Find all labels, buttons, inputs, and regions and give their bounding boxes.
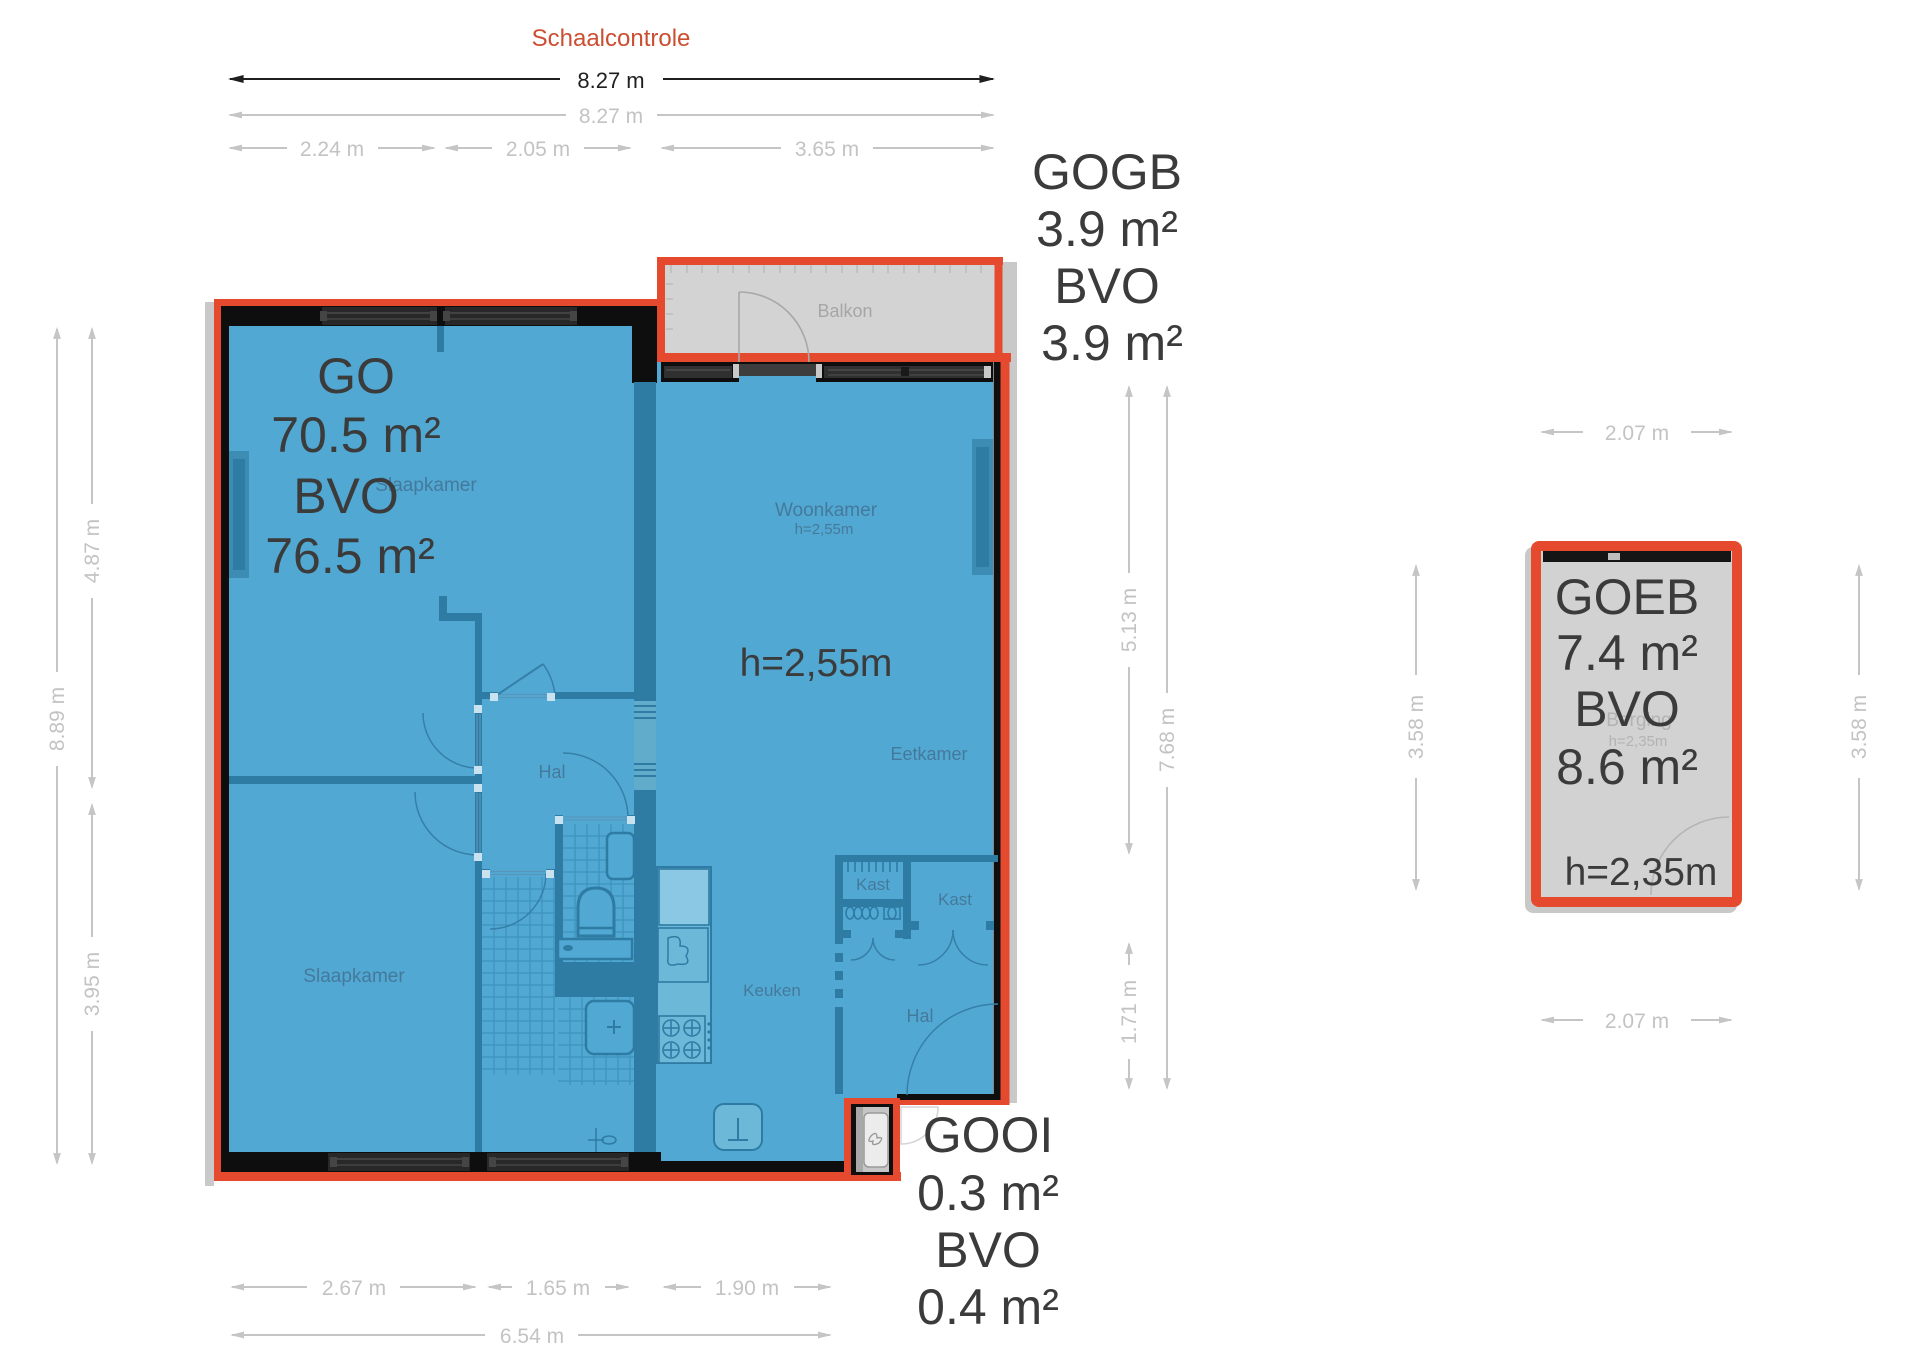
svg-text:1.71 m: 1.71 m xyxy=(1118,980,1141,1044)
svg-text:GOGB: GOGB xyxy=(1032,144,1182,200)
svg-text:8.27 m: 8.27 m xyxy=(577,68,644,93)
svg-text:3.58 m: 3.58 m xyxy=(1405,695,1428,759)
svg-text:3.58 m: 3.58 m xyxy=(1848,695,1871,759)
svg-text:h=2,35m: h=2,35m xyxy=(1565,851,1718,894)
svg-text:Woonkamer: Woonkamer xyxy=(775,500,878,521)
svg-text:Balkon: Balkon xyxy=(817,301,872,321)
svg-text:h=2,55m: h=2,55m xyxy=(795,521,854,538)
svg-text:70.5 m²: 70.5 m² xyxy=(271,407,441,463)
svg-text:3.65 m: 3.65 m xyxy=(795,138,859,161)
svg-text:7.68 m: 7.68 m xyxy=(1156,708,1179,772)
svg-text:Kast: Kast xyxy=(938,890,972,909)
svg-text:Eetkamer: Eetkamer xyxy=(890,744,967,764)
svg-text:8.6 m²: 8.6 m² xyxy=(1556,739,1698,795)
svg-text:BVO: BVO xyxy=(1574,681,1680,737)
svg-text:BVO: BVO xyxy=(935,1222,1041,1278)
svg-text:3.9 m²: 3.9 m² xyxy=(1041,315,1183,371)
svg-text:3.95 m: 3.95 m xyxy=(81,952,104,1016)
svg-text:BVO: BVO xyxy=(1054,258,1160,314)
svg-text:1.65 m: 1.65 m xyxy=(526,1277,590,1300)
svg-text:Hal: Hal xyxy=(538,762,565,782)
svg-text:Kast: Kast xyxy=(856,875,890,894)
svg-text:5.13 m: 5.13 m xyxy=(1118,588,1141,652)
svg-text:GOOI: GOOI xyxy=(923,1107,1054,1163)
svg-text:Keuken: Keuken xyxy=(743,981,801,1000)
svg-text:7.4 m²: 7.4 m² xyxy=(1556,625,1698,681)
svg-text:Slaapkamer: Slaapkamer xyxy=(303,966,405,987)
svg-text:8.89 m: 8.89 m xyxy=(46,687,69,751)
svg-text:6.54 m: 6.54 m xyxy=(500,1325,564,1348)
svg-text:4.87 m: 4.87 m xyxy=(81,519,104,583)
svg-text:2.67 m: 2.67 m xyxy=(322,1277,386,1300)
svg-text:GOEB: GOEB xyxy=(1555,569,1699,625)
svg-text:Hal: Hal xyxy=(906,1006,933,1026)
svg-text:2.05 m: 2.05 m xyxy=(506,138,570,161)
svg-text:76.5 m²: 76.5 m² xyxy=(265,528,435,584)
svg-text:h=2,55m: h=2,55m xyxy=(740,642,893,685)
svg-text:2.24 m: 2.24 m xyxy=(300,138,364,161)
svg-text:1.90 m: 1.90 m xyxy=(715,1277,779,1300)
svg-text:8.27 m: 8.27 m xyxy=(579,105,643,128)
svg-text:2.07 m: 2.07 m xyxy=(1605,1010,1669,1033)
svg-text:Schaalcontrole: Schaalcontrole xyxy=(532,25,691,52)
svg-text:3.9 m²: 3.9 m² xyxy=(1036,201,1178,257)
svg-text:0.3 m²: 0.3 m² xyxy=(917,1165,1059,1221)
svg-text:BVO: BVO xyxy=(293,468,399,524)
svg-text:2.07 m: 2.07 m xyxy=(1605,422,1669,445)
svg-text:0.4 m²: 0.4 m² xyxy=(917,1279,1059,1335)
svg-text:GO: GO xyxy=(317,348,395,404)
